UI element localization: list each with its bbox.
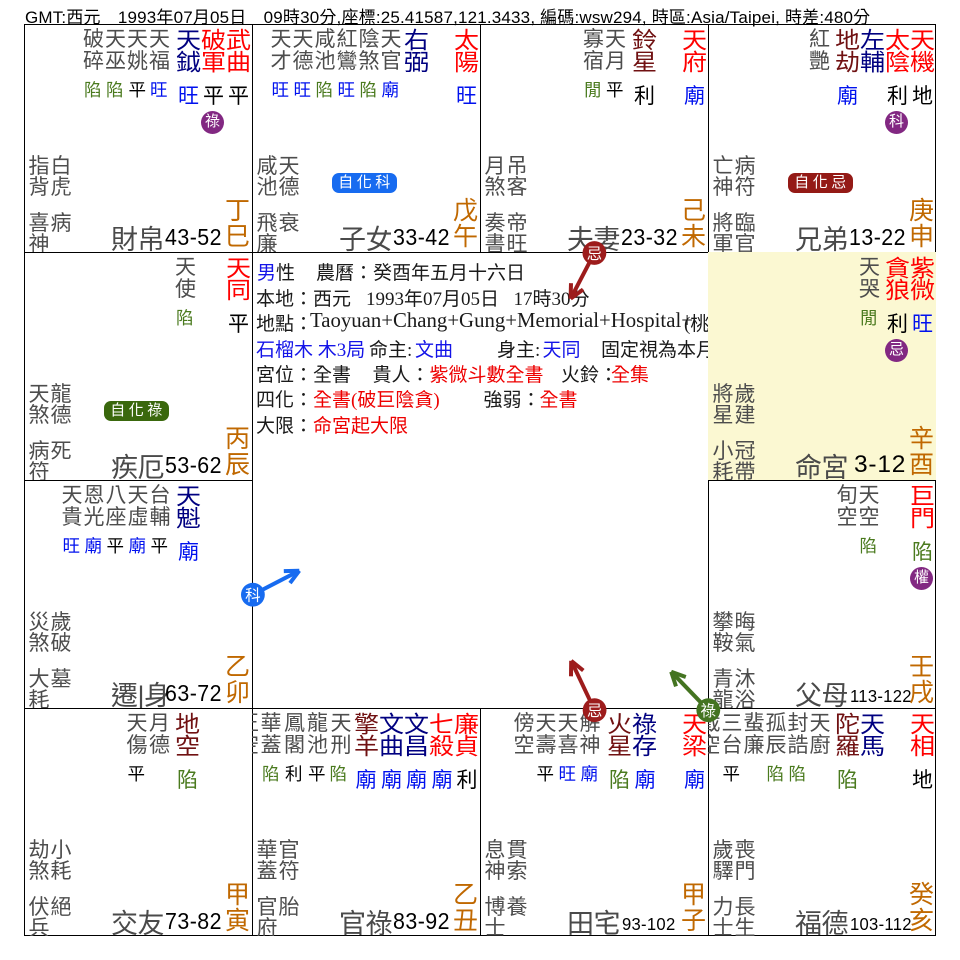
svg-text:忌: 忌 bbox=[587, 245, 603, 263]
svg-text:科: 科 bbox=[245, 587, 261, 605]
svg-text:祿: 祿 bbox=[701, 702, 717, 720]
svg-text:忌: 忌 bbox=[587, 702, 603, 720]
